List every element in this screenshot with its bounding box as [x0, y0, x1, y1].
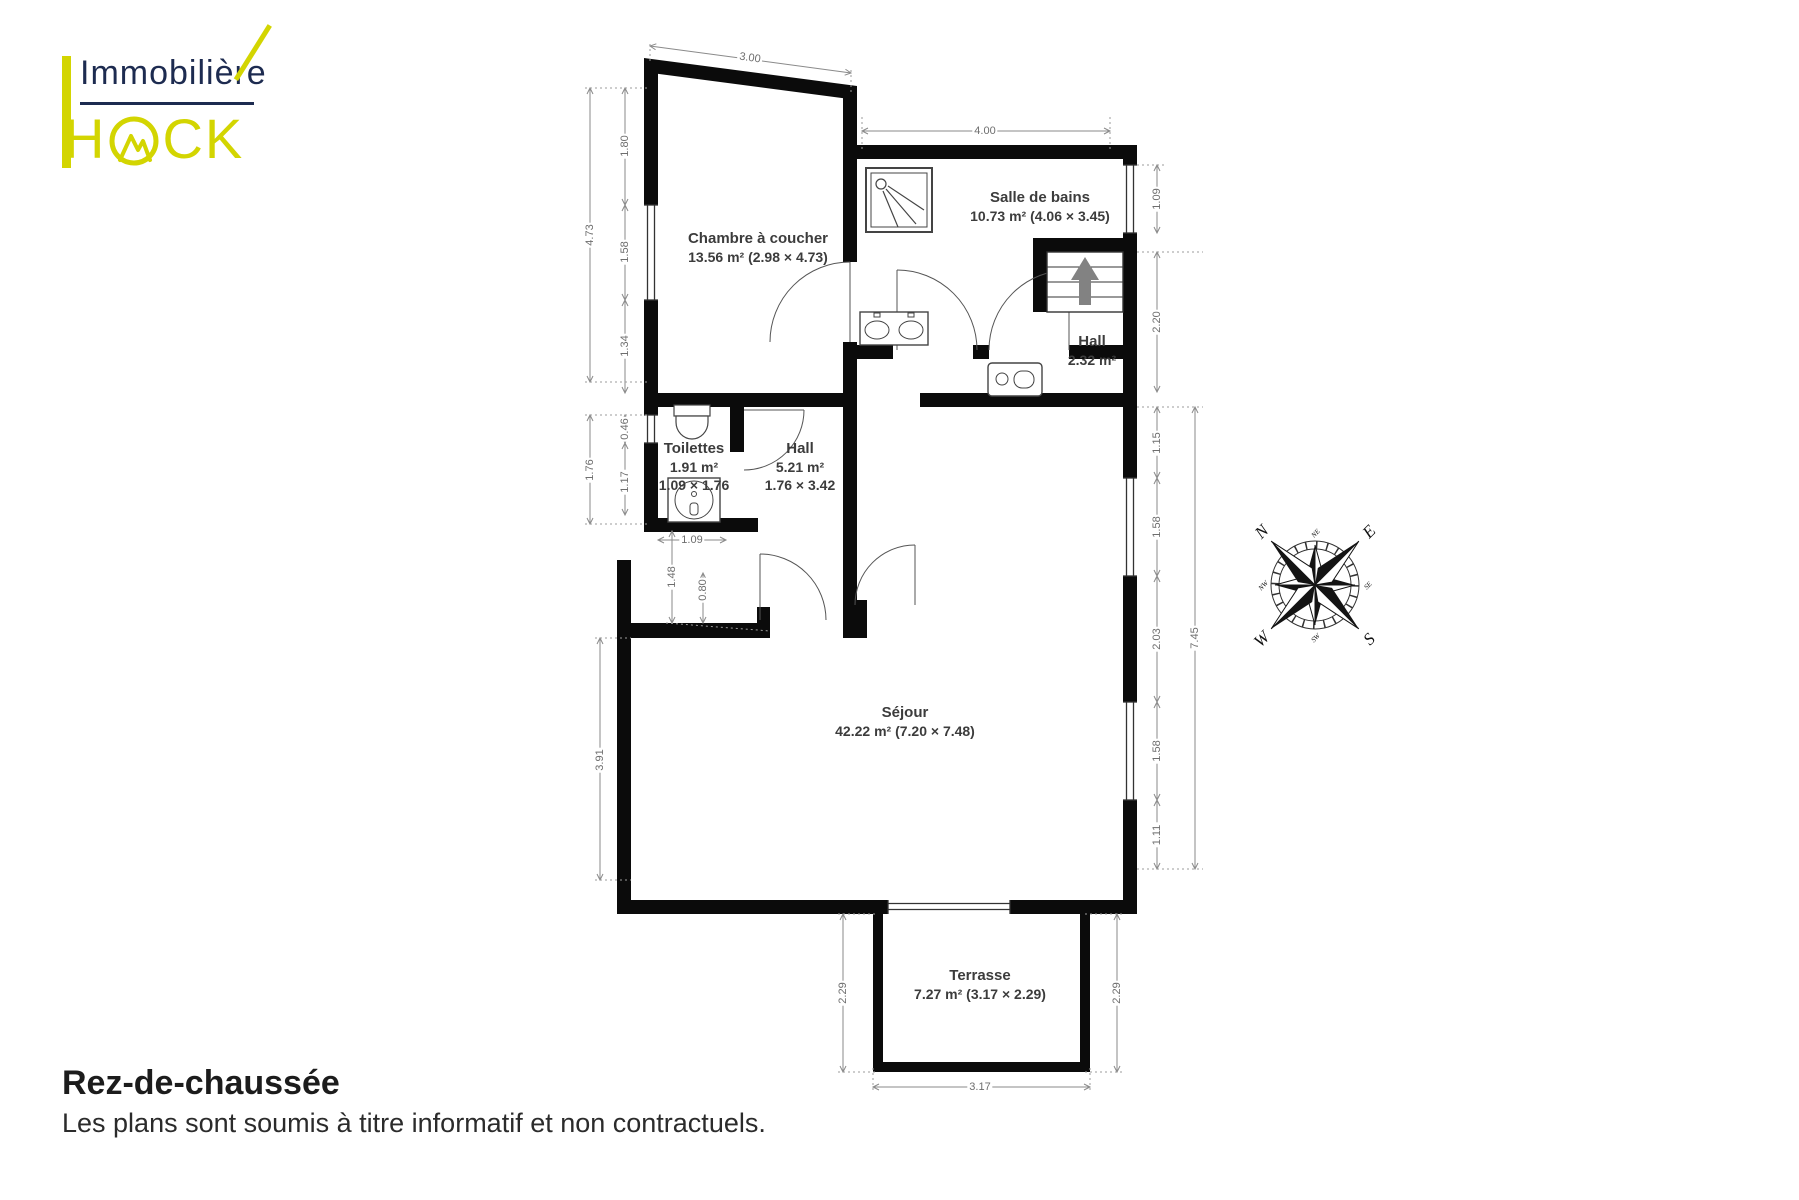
- wall-bedroom-right-lower: [843, 342, 857, 407]
- logo-divider: [80, 102, 254, 105]
- room-name: Terrasse: [914, 967, 1046, 985]
- toilettes-window: [644, 415, 658, 443]
- wall-toilettes-left-a: [644, 407, 658, 415]
- laundry-fixture-icon: [988, 363, 1042, 396]
- room-name: Chambre à coucher: [688, 230, 828, 248]
- room-area: 7.27 m² (3.17 × 2.29): [914, 985, 1046, 1003]
- wall-sejour-bottom-a: [617, 900, 888, 914]
- compass-nw-label: NW: [1256, 578, 1271, 593]
- wall-sejour-left: [617, 560, 631, 914]
- dim-label-terrace-w: 3.17: [967, 1081, 992, 1093]
- dim-label-bath-w: 4.00: [972, 125, 997, 137]
- logo-wordmark: H CK: [64, 110, 244, 168]
- bedroom-door: [770, 262, 850, 342]
- compass-rose: N E S W NE SE SW NW: [1196, 467, 1434, 705]
- wall-pillar: [843, 600, 867, 638]
- room-area: 2.32 m²: [1068, 351, 1116, 369]
- compass-south-label: S: [1359, 629, 1379, 649]
- wall-terrace-left: [873, 914, 883, 1072]
- wall-stairs-left: [1033, 252, 1047, 312]
- compass-ne-label: NE: [1309, 527, 1322, 540]
- disclaimer-text: Les plans sont soumis à titre informatif…: [62, 1108, 766, 1139]
- room-name: Hall: [1068, 333, 1116, 351]
- compass-west-label: W: [1250, 626, 1275, 651]
- room-label-hall-haut: Hall 2.32 m²: [1068, 333, 1116, 369]
- dim-label-seg-046: 0.46: [619, 416, 631, 441]
- room-name: Salle de bains: [970, 189, 1110, 207]
- wall-terrace-right: [1080, 914, 1090, 1072]
- wall-terrace-bottom: [873, 1062, 1090, 1072]
- dim-label-seg-158: 1.58: [619, 239, 631, 264]
- room-dims: 1.09 × 1.76: [659, 476, 729, 494]
- room-area: 1.91 m²: [659, 458, 729, 476]
- dim-label-right-115: 1.15: [1151, 430, 1163, 455]
- dim-label-right-158b: 1.58: [1151, 738, 1163, 763]
- room-area: 13.56 m² (2.98 × 4.73): [688, 248, 828, 266]
- dim-label-terrace-l: 2.29: [837, 980, 849, 1005]
- wall-bedroom-left-lower: [644, 300, 658, 407]
- wall-sejour-top-stub: [757, 607, 770, 623]
- dim-label-right-total: 7.45: [1189, 625, 1201, 650]
- wall-sejour-bottom-b: [1010, 900, 1137, 914]
- wall-bathroom-top: [850, 145, 1137, 159]
- room-label-sejour: Séjour 42.22 m² (7.20 × 7.48): [835, 704, 975, 740]
- sejour-window-2: [1123, 702, 1137, 800]
- wall-bathroom-bottom-b: [973, 345, 989, 359]
- dim-label-right-111: 1.11: [1151, 823, 1163, 848]
- dim-label-right-158a: 1.58: [1151, 514, 1163, 539]
- staircase: [1047, 252, 1123, 312]
- compass-north-label: N: [1250, 520, 1273, 543]
- dim-label-bath-win: 1.09: [1151, 186, 1163, 211]
- dim-label-seg-180: 1.80: [619, 133, 631, 158]
- bathroom-window: [1123, 165, 1137, 233]
- wall-toilettes-right: [730, 407, 744, 452]
- dim-label-toilettes-h: 1.76: [584, 457, 596, 482]
- sejour-window-1: [1123, 478, 1137, 576]
- wall-sejour-top: [617, 623, 770, 638]
- dim-label-right-203: 2.03: [1151, 626, 1163, 651]
- logo-letters-ck: CK: [162, 110, 244, 168]
- dim-label-seg-117: 1.17: [619, 469, 631, 494]
- toilet-icon: [674, 405, 710, 439]
- room-label-hall: Hall 5.21 m² 1.76 × 3.42: [765, 440, 835, 494]
- wall-right-c: [1123, 576, 1137, 702]
- wall-right-b: [1123, 233, 1137, 478]
- dim-label-hall-080: 0.80: [697, 577, 709, 602]
- dim-label-stairs-h: 2.20: [1151, 309, 1163, 334]
- room-label-chambre: Chambre à coucher 13.56 m² (2.98 × 4.73): [688, 230, 828, 266]
- room-name: Toilettes: [659, 440, 729, 458]
- room-label-toilettes: Toilettes 1.91 m² 1.09 × 1.76: [659, 440, 729, 494]
- compass-east-label: E: [1358, 521, 1380, 543]
- room-area: 42.22 m² (7.20 × 7.48): [835, 722, 975, 740]
- floor-plan-page: { "logo": { "name1": "Immobilière", "nam…: [0, 0, 1799, 1200]
- dim-label-sejour-left: 3.91: [594, 747, 606, 772]
- dim-label-seg-134: 1.34: [619, 333, 631, 358]
- wall-bedroom-top: [644, 58, 857, 100]
- compass-sw-label: SW: [1310, 631, 1323, 644]
- wall-bedroom-right-upper: [843, 86, 857, 262]
- dim-label-bedroom-h: 4.73: [584, 222, 596, 247]
- wall-bedroom-left-upper: [644, 66, 658, 205]
- wall-right-d: [1123, 800, 1137, 914]
- room-name: Séjour: [835, 704, 975, 722]
- sejour-door-right: [855, 545, 915, 605]
- wall-bathroom-bottom-a: [857, 345, 893, 359]
- floor-plan-drawing: N E S W NE SE SW NW: [0, 0, 1799, 1200]
- dim-label-terrace-r: 2.29: [1111, 980, 1123, 1005]
- logo-house-a-icon: [106, 110, 162, 168]
- room-name: Hall: [765, 440, 835, 458]
- dim-label-hall-148: 1.48: [666, 564, 678, 589]
- shower-icon: [866, 168, 932, 232]
- terrace-sliding-door: [888, 900, 1010, 914]
- bedroom-window: [644, 205, 658, 300]
- double-sink-icon: [860, 312, 928, 345]
- room-label-terrasse: Terrasse 7.27 m² (3.17 × 2.29): [914, 967, 1046, 1003]
- logo-letter-h: H: [64, 110, 106, 168]
- wall-right-a: [1123, 145, 1137, 165]
- room-area: 10.73 m² (4.06 × 3.45): [970, 207, 1110, 225]
- wall-stairs-top: [1033, 238, 1123, 252]
- dim-label-toilettes-w: 1.09: [679, 534, 704, 546]
- room-area: 5.21 m²: [765, 458, 835, 476]
- room-dims: 1.76 × 3.42: [765, 476, 835, 494]
- floor-title: Rez-de-chaussée: [62, 1064, 340, 1103]
- wall-hall-right: [843, 407, 857, 600]
- compass-se-label: SE: [1362, 580, 1374, 592]
- room-label-salle-de-bains: Salle de bains 10.73 m² (4.06 × 3.45): [970, 189, 1110, 225]
